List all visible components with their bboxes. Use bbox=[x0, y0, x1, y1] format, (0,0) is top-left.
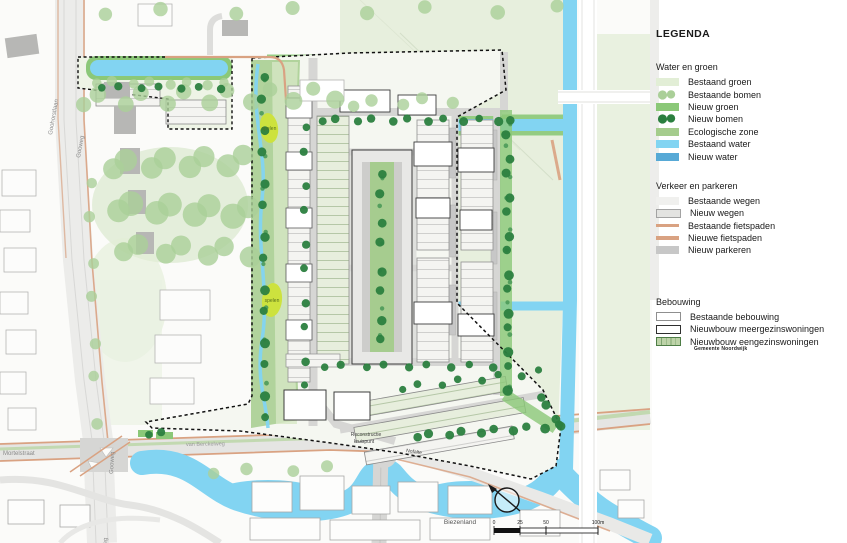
legend-item-nieuw-bomen: Nieuw bomen bbox=[656, 113, 841, 125]
swatch-ecologische-zone bbox=[656, 128, 679, 136]
legend-item-nieuw-parkeren: Nieuw parkeren bbox=[656, 244, 841, 256]
legend-item-nieuw-water: Nieuw water bbox=[656, 150, 841, 162]
swatch-bestaand-groen bbox=[656, 78, 679, 86]
scale-0: 0 bbox=[493, 520, 496, 526]
label-biezenland: Biezenland bbox=[444, 519, 477, 526]
swatch-eengezinswoningen bbox=[656, 337, 681, 346]
legend-section-water-groen: Water en groen bbox=[656, 62, 841, 72]
swatch-nieuw-water bbox=[656, 153, 679, 161]
legend-item-bestaand-water: Bestaand water bbox=[656, 138, 841, 150]
legend-item-ecologische-zone: Ecologische zone bbox=[656, 126, 841, 138]
scale-50: 50 bbox=[543, 520, 549, 526]
swatch-nieuw-wegen bbox=[656, 209, 681, 218]
legend-item-nieuw-groen: Nieuw groen bbox=[656, 101, 841, 113]
legend-item-bestaande-bomen: Bestaande bomen bbox=[656, 88, 841, 100]
label-spelen-2: spelen bbox=[265, 298, 280, 304]
legend-item-bestaande-wegen: Bestaande wegen bbox=[656, 195, 841, 207]
label-gooweg-3: Gooweg bbox=[102, 537, 109, 543]
label-reconstructie-1: Reconstructie bbox=[351, 432, 382, 438]
swatch-meergezinswoningen bbox=[656, 325, 681, 334]
swatch-nieuwe-fietspaden bbox=[656, 236, 679, 241]
legend-panel: LEGENDA Water en groen Bestaand groen Be… bbox=[656, 28, 841, 348]
masterplan-page: 0 25 50 100m Goohorstlaan Gooweg Gooweg … bbox=[0, 0, 847, 543]
label-gooweg-2: Gooweg bbox=[109, 451, 116, 474]
label-spelen-1: spelen bbox=[262, 126, 277, 132]
legend-section-bebouwing: Bebouwing bbox=[656, 297, 841, 307]
swatch-bestaand-water bbox=[656, 140, 679, 148]
legend-item-bestaande-bebouwing: Bestaande bebouwing bbox=[656, 311, 841, 323]
legend-item-bestaand-groen: Bestaand groen bbox=[656, 76, 841, 88]
swatch-nieuw-parkeren bbox=[656, 246, 679, 254]
legend-item-eengezinswoningen: Nieuwbouw eengezinswoningen bbox=[656, 335, 841, 347]
swatch-bestaande-fietspaden bbox=[656, 224, 679, 227]
swatch-nieuw-groen bbox=[656, 103, 679, 111]
swatch-bestaande-bomen-icon bbox=[656, 90, 679, 100]
label-reconstructie-2: kruispunt bbox=[354, 439, 375, 445]
scale-25: 25 bbox=[517, 520, 523, 526]
legend-item-nieuw-wegen: Nieuw wegen bbox=[656, 207, 841, 219]
swatch-nieuw-bomen-icon bbox=[656, 114, 679, 124]
legend-item-meergezinswoningen: Nieuwbouw meergezinswoningen bbox=[656, 323, 841, 335]
legend-title: LEGENDA bbox=[656, 28, 841, 40]
swatch-bestaande-bebouwing bbox=[656, 312, 681, 321]
scale-100m: 100m bbox=[592, 520, 605, 526]
label-mortelstraat: Mortelstraat bbox=[3, 451, 35, 457]
label-van-berckelweg: van Berckelweg bbox=[186, 441, 225, 448]
swatch-bestaande-wegen bbox=[656, 197, 679, 205]
legend-item-nieuwe-fietspaden: Nieuwe fietspaden bbox=[656, 232, 841, 244]
legend-item-bestaande-fietspaden: Bestaande fietspaden bbox=[656, 220, 841, 232]
map-credit: Gemeente Noordwijk bbox=[694, 346, 747, 352]
legend-section-verkeer: Verkeer en parkeren bbox=[656, 181, 841, 191]
